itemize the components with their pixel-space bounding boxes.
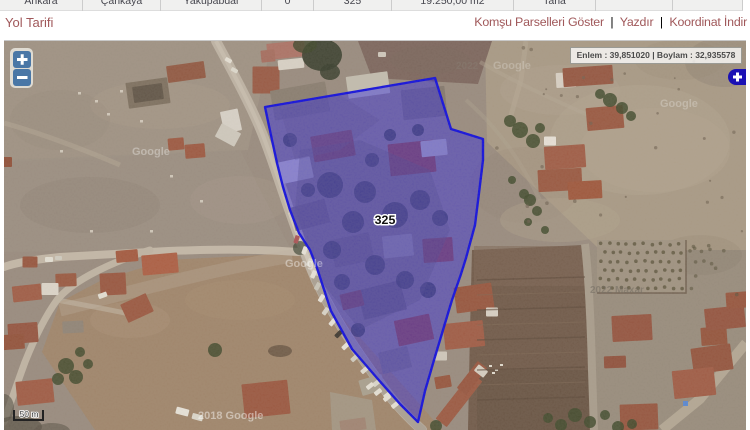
svg-text:Google: Google: [660, 98, 698, 110]
svg-text:2022: 2022: [456, 61, 479, 72]
svg-text:2018 Google: 2018 Google: [198, 410, 263, 422]
svg-text:Google: Google: [493, 60, 531, 72]
svg-text:Google: Google: [285, 258, 323, 270]
svg-text:2022 Maxar: 2022 Maxar: [590, 285, 644, 296]
svg-text:50 m: 50 m: [20, 409, 39, 419]
svg-text:Google: Google: [132, 146, 170, 158]
svg-text:325: 325: [375, 213, 396, 227]
